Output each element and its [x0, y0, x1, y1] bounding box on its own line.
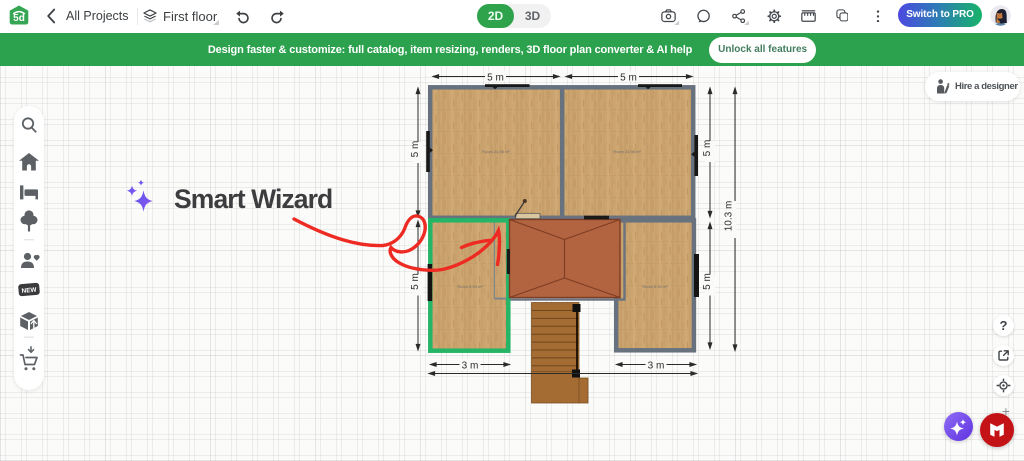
svg-text:5 m: 5 m	[620, 72, 637, 83]
svg-text:5d: 5d	[13, 13, 25, 24]
svg-text:3 m: 3 m	[648, 360, 665, 371]
svg-text:Room 8.94 m²: Room 8.94 m²	[642, 284, 668, 289]
svg-text:5 m: 5 m	[702, 140, 713, 157]
svg-text:5 m: 5 m	[410, 273, 421, 290]
svg-text:Room 24.96 m²: Room 24.96 m²	[613, 149, 641, 154]
svg-text:Room 8.94 m²: Room 8.94 m²	[457, 284, 483, 289]
svg-text:NEW: NEW	[21, 287, 37, 295]
svg-text:3 m: 3 m	[462, 360, 479, 371]
svg-text:5 m: 5 m	[487, 72, 504, 83]
svg-text:5 m: 5 m	[410, 141, 421, 158]
svg-text:Room 24.96 m²: Room 24.96 m²	[482, 149, 510, 154]
svg-text:5 m: 5 m	[702, 273, 713, 290]
svg-text:10.3 m: 10.3 m	[724, 201, 735, 232]
